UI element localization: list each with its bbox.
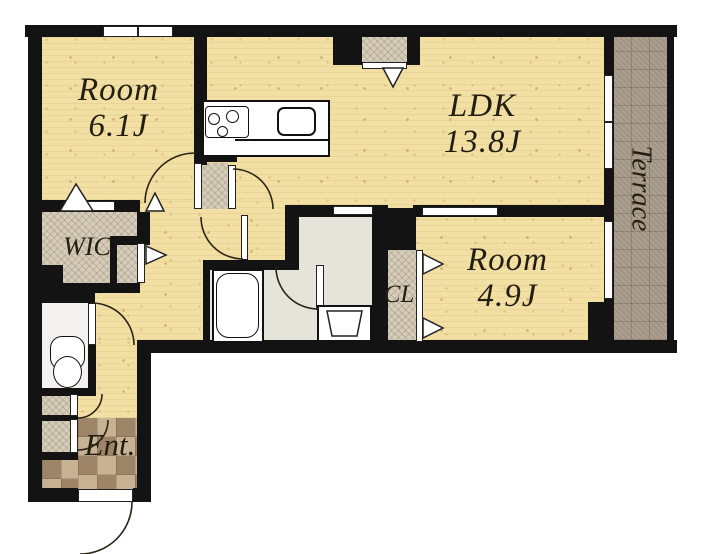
bathtub — [216, 273, 259, 338]
hall-lower-floor — [95, 340, 137, 418]
ldk-window-upper — [604, 75, 613, 122]
hall-closet-a-door — [70, 394, 78, 416]
stove-burner-2 — [226, 110, 239, 123]
wall-cl-top — [388, 208, 416, 250]
kitchen-sink — [277, 107, 316, 136]
room1-name: Room — [42, 72, 195, 108]
room1-label: Room 6.1J — [42, 72, 195, 145]
floor-plan: Room 6.1J LDK 13.8J Room 4.9J WIC CL Ent… — [0, 0, 720, 554]
ldk-window-lower — [604, 122, 613, 169]
wall-terrace-edge — [667, 25, 674, 353]
terrace-label-text: Terrace — [625, 145, 656, 231]
room1-size: 6.1J — [42, 108, 195, 144]
room1-door-leaf — [194, 163, 202, 209]
stove-burner-1 — [208, 113, 220, 125]
room1-window-right — [138, 26, 173, 37]
toilet-door-leaf — [88, 303, 96, 345]
toilet-bowl — [53, 356, 82, 388]
ldk-label: LDK 13.8J — [400, 88, 565, 161]
wall-bath-left — [203, 260, 210, 342]
wall-entrance-bottom-right — [133, 488, 151, 502]
entrance-door-panel — [78, 489, 133, 502]
cl-label: CL — [376, 281, 422, 309]
shaft-hatch-door — [362, 62, 407, 69]
ldk-name: LDK — [400, 88, 565, 124]
room2-label: Room 4.9J — [420, 242, 595, 315]
pipe-shaft — [362, 37, 407, 62]
counter-edge-line — [235, 139, 330, 141]
washroom-sliding-door — [333, 206, 373, 215]
ldk-room2-sliding-door — [422, 207, 498, 216]
wall-column-right — [137, 340, 151, 490]
entrance-door-arc — [80, 502, 132, 554]
ldk-size: 13.8J — [400, 124, 565, 160]
room1-wic-sliding-door — [66, 201, 115, 211]
wall-top-pillar-a — [333, 25, 362, 65]
wall-top-pillar-b — [407, 25, 420, 65]
wall-wic-bottom — [42, 283, 140, 293]
hall-closet-a-floor — [42, 396, 70, 415]
stove-burner-3 — [217, 126, 228, 137]
washbasin-cabinet — [317, 305, 372, 342]
wic-closet-door — [137, 243, 145, 283]
wall-entrance-bottom-left — [28, 488, 78, 502]
hall-door-leaf — [241, 215, 248, 260]
wic-label: WIC — [42, 233, 132, 262]
room2-name: Room — [420, 242, 595, 278]
kitchen-closet-door — [228, 165, 236, 209]
room2-window — [604, 221, 613, 299]
kitchen-closet-floor — [202, 163, 228, 209]
washroom-door-leaf — [316, 265, 324, 310]
wall-left — [28, 25, 42, 502]
room1-window-left — [103, 26, 138, 37]
entrance-label: Ent. — [58, 428, 162, 462]
entrance-tile-floor-b — [42, 460, 78, 490]
wall-toilet-top — [42, 293, 95, 303]
wall-cl-left — [372, 208, 388, 342]
room2-size: 4.9J — [420, 278, 595, 314]
wall-toilet-bottom — [28, 388, 95, 396]
terrace-label: Terrace — [613, 37, 667, 340]
hall-column-floor — [95, 290, 137, 340]
